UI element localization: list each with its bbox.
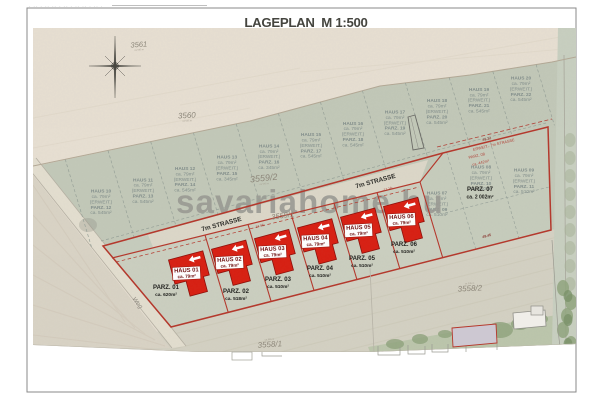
svg-text:- -- - -- -- - -- - -- -- - --: - -- - -- -- - -- - -- -- - -- - <box>29 4 103 8</box>
svg-text:LAGEPLAN M 1:500: LAGEPLAN M 1:500 <box>244 15 367 30</box>
